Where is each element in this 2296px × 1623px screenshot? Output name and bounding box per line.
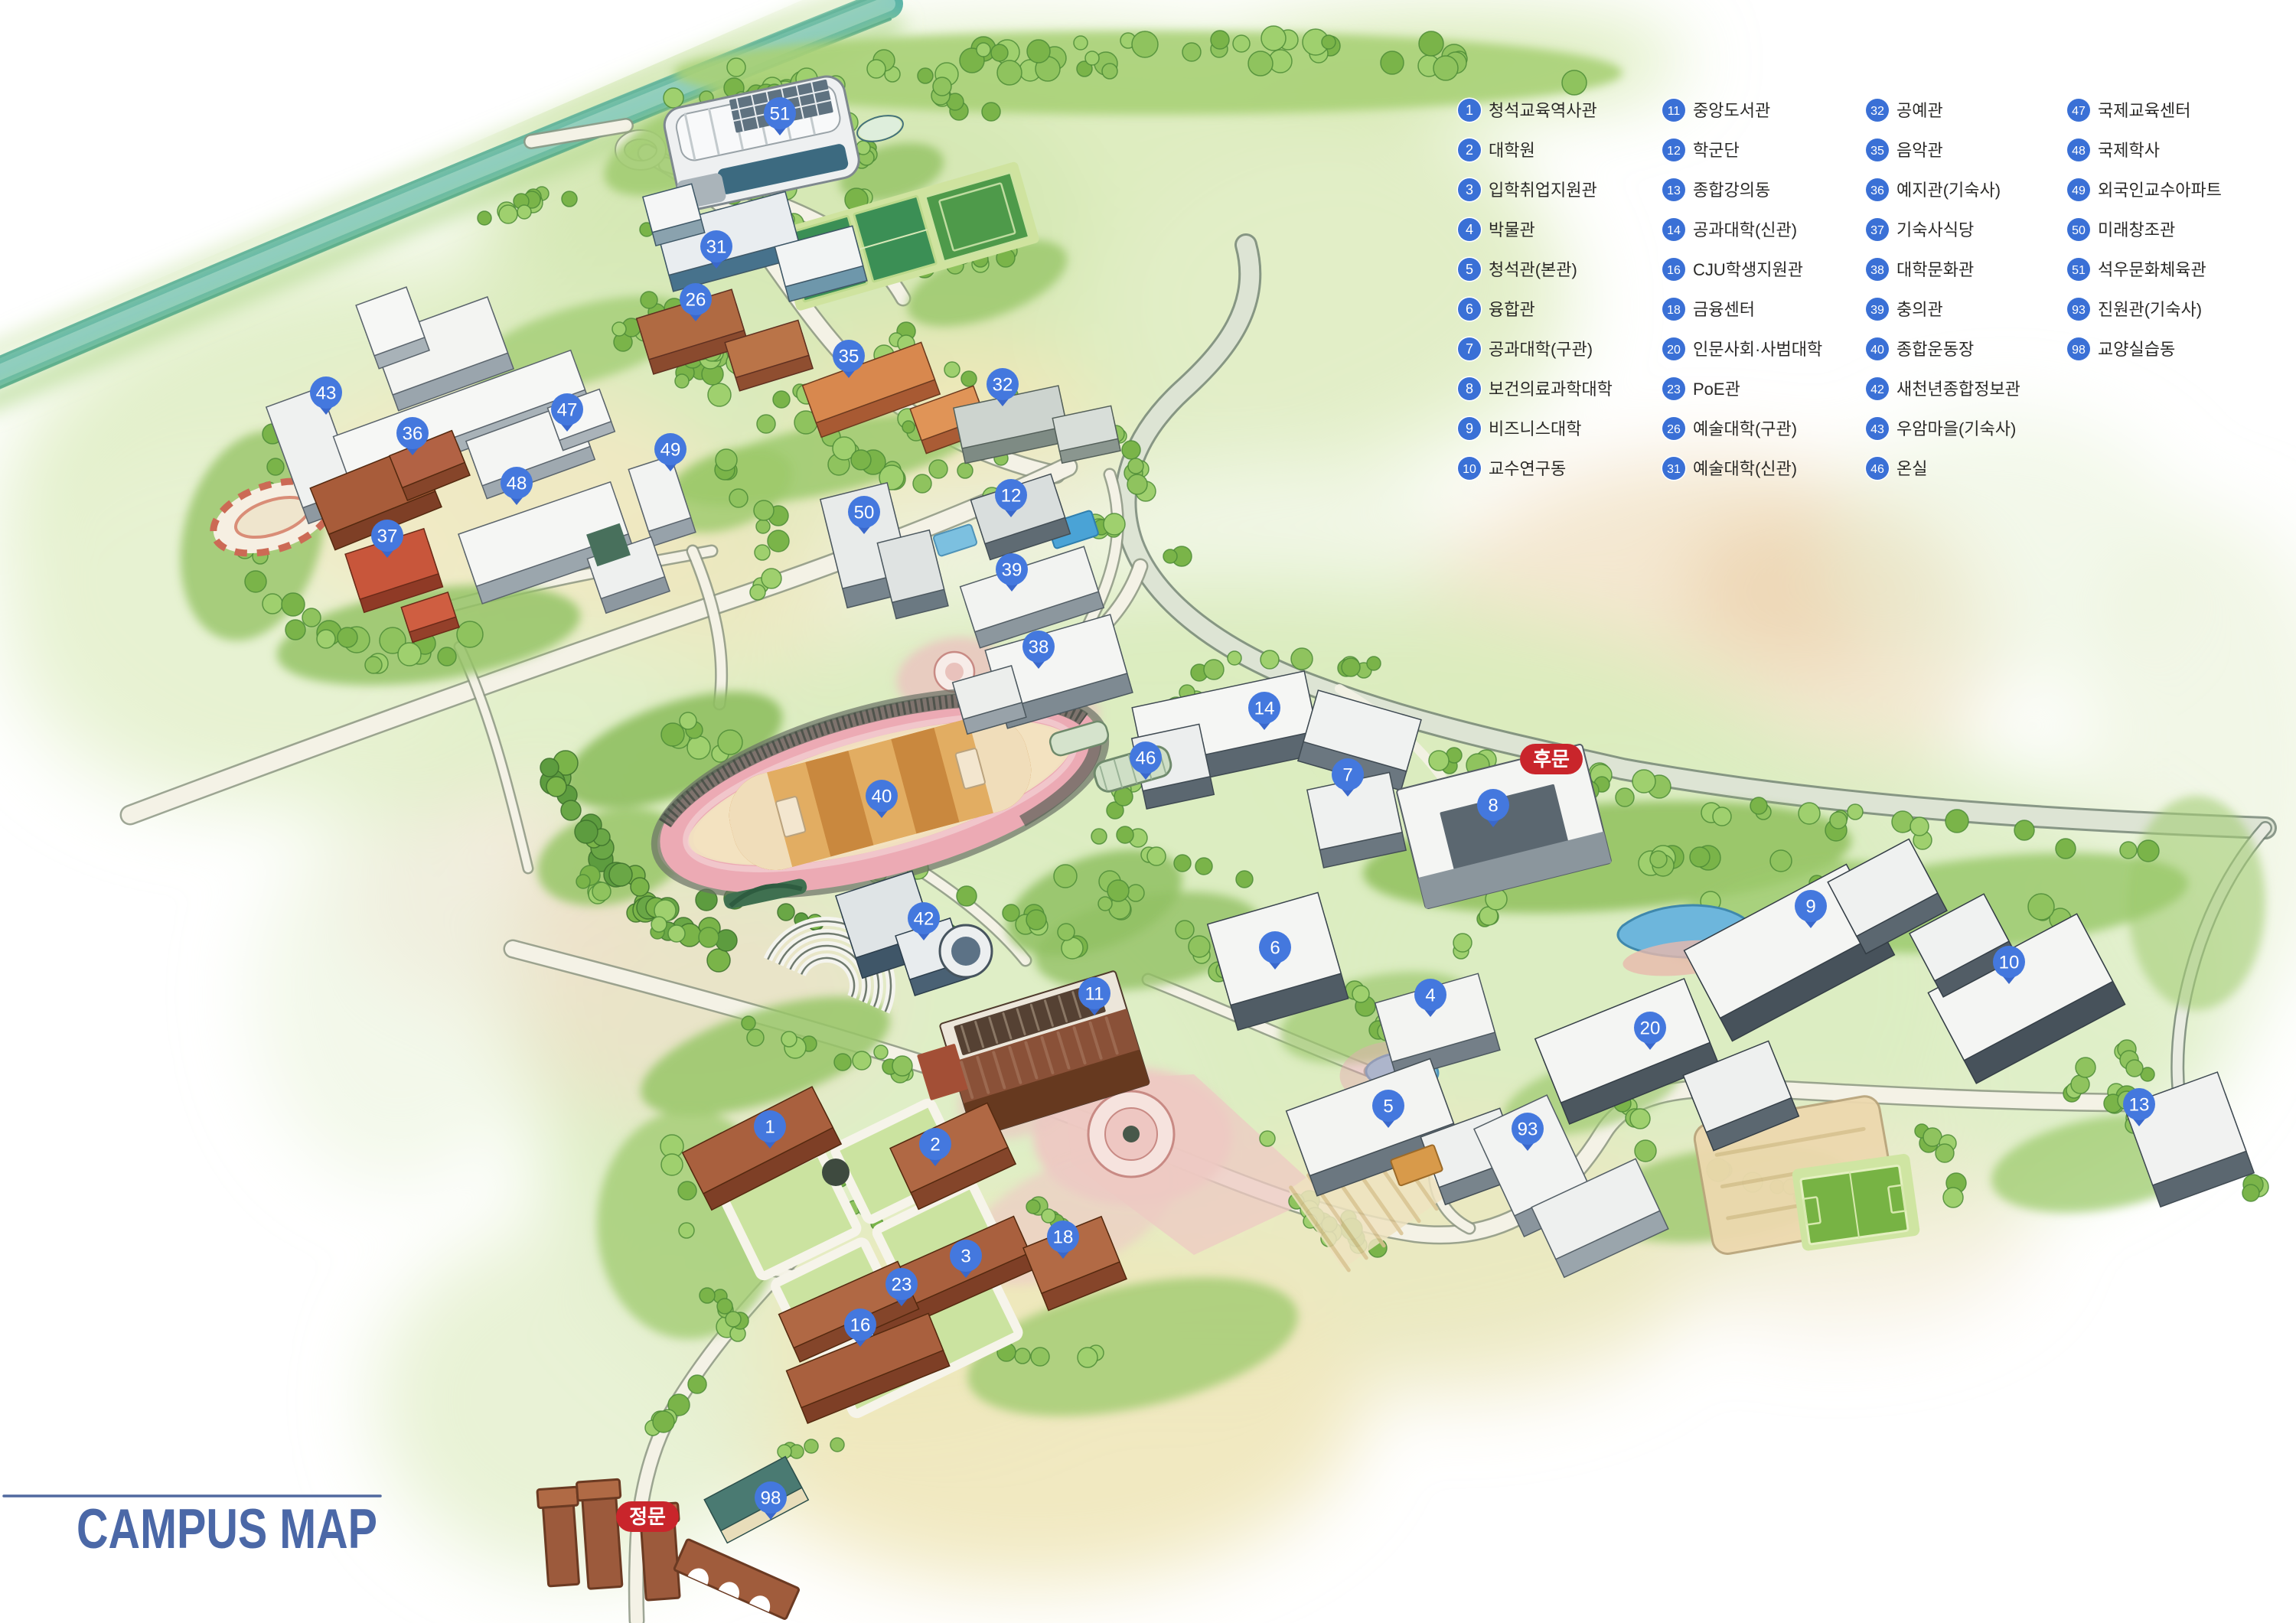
svg-text:교수연구동: 교수연구동 [1489, 459, 1566, 478]
svg-text:4: 4 [1466, 222, 1473, 237]
svg-text:종합강의동: 종합강의동 [1693, 181, 1770, 200]
svg-text:32: 32 [993, 375, 1013, 396]
svg-text:13: 13 [1667, 184, 1681, 197]
svg-text:온실: 온실 [1896, 459, 1927, 478]
svg-text:학군단: 학군단 [1693, 141, 1740, 160]
svg-text:10: 10 [1999, 953, 2020, 973]
svg-text:23: 23 [1667, 383, 1681, 396]
svg-text:40: 40 [1870, 344, 1884, 357]
svg-text:종합운동장: 종합운동장 [1896, 340, 1974, 359]
svg-text:14: 14 [1667, 224, 1681, 237]
svg-text:35: 35 [839, 347, 859, 367]
svg-text:93: 93 [2072, 304, 2086, 317]
svg-text:예술대학(신관): 예술대학(신관) [1693, 459, 1797, 478]
svg-text:38: 38 [1029, 637, 1049, 658]
svg-text:32: 32 [1870, 105, 1884, 118]
svg-text:26: 26 [1667, 423, 1681, 436]
svg-text:외국인교수아파트: 외국인교수아파트 [2098, 181, 2222, 200]
svg-text:12: 12 [1667, 145, 1681, 158]
svg-text:후문: 후문 [1533, 748, 1570, 771]
svg-text:우암마을(기숙사): 우암마을(기숙사) [1896, 419, 2016, 438]
svg-text:47: 47 [557, 400, 578, 421]
svg-text:인문사회·사범대학: 인문사회·사범대학 [1693, 340, 1822, 359]
svg-text:98: 98 [761, 1488, 781, 1509]
svg-text:49: 49 [660, 440, 681, 461]
svg-text:석우문화체육관: 석우문화체육관 [2098, 260, 2206, 279]
svg-text:대학문화관: 대학문화관 [1896, 260, 1974, 279]
svg-text:37: 37 [1870, 224, 1884, 237]
svg-text:청석관(본관): 청석관(본관) [1489, 260, 1577, 279]
svg-text:98: 98 [2072, 344, 2086, 357]
svg-text:10: 10 [1463, 463, 1476, 476]
svg-text:음악관: 음악관 [1896, 141, 1943, 160]
svg-text:5: 5 [1466, 262, 1473, 277]
svg-text:2: 2 [1466, 142, 1473, 158]
svg-text:43: 43 [1870, 423, 1884, 436]
svg-text:16: 16 [850, 1315, 871, 1336]
svg-text:36: 36 [403, 424, 423, 445]
svg-text:중앙도서관: 중앙도서관 [1693, 101, 1770, 120]
svg-text:1: 1 [1466, 103, 1473, 118]
svg-text:예지관(기숙사): 예지관(기숙사) [1896, 181, 2001, 200]
svg-text:진원관(기숙사): 진원관(기숙사) [2098, 300, 2202, 319]
svg-text:공과대학(신관): 공과대학(신관) [1693, 220, 1797, 240]
svg-text:8: 8 [1466, 381, 1473, 396]
svg-text:11: 11 [1085, 984, 1104, 1005]
svg-text:청석교육역사관: 청석교육역사관 [1489, 101, 1597, 120]
svg-text:38: 38 [1870, 264, 1884, 277]
svg-text:교양실습동: 교양실습동 [2098, 340, 2175, 359]
svg-text:11: 11 [1668, 105, 1681, 118]
svg-text:PoE관: PoE관 [1693, 380, 1740, 399]
svg-text:예술대학(구관): 예술대학(구관) [1693, 419, 1797, 438]
svg-text:40: 40 [872, 787, 892, 807]
svg-text:국제교육센터: 국제교육센터 [2098, 101, 2190, 120]
svg-text:국제학사: 국제학사 [2098, 141, 2160, 160]
svg-text:정문: 정문 [629, 1505, 666, 1528]
svg-text:18: 18 [1667, 304, 1681, 317]
svg-text:3: 3 [1466, 182, 1473, 197]
svg-text:23: 23 [892, 1275, 912, 1295]
svg-text:미래창조관: 미래창조관 [2098, 220, 2175, 240]
svg-text:31: 31 [1667, 463, 1681, 476]
svg-text:공예관: 공예관 [1896, 101, 1943, 120]
svg-text:31: 31 [706, 237, 727, 258]
svg-text:93: 93 [1518, 1119, 1538, 1140]
svg-text:20: 20 [1667, 344, 1681, 357]
svg-text:51: 51 [770, 104, 791, 125]
svg-text:36: 36 [1870, 184, 1884, 197]
svg-text:50: 50 [2072, 224, 2086, 237]
svg-text:CAMPUS MAP: CAMPUS MAP [77, 1498, 377, 1560]
svg-text:46: 46 [1870, 463, 1884, 476]
svg-text:대학원: 대학원 [1489, 141, 1535, 160]
svg-text:9: 9 [1466, 421, 1473, 436]
svg-text:42: 42 [1870, 383, 1884, 396]
svg-text:16: 16 [1667, 264, 1681, 277]
svg-text:50: 50 [854, 503, 875, 523]
svg-text:46: 46 [1136, 748, 1156, 769]
svg-text:1: 1 [765, 1117, 775, 1138]
svg-text:기숙사식당: 기숙사식당 [1896, 220, 1974, 240]
svg-text:7: 7 [1342, 765, 1352, 786]
svg-text:35: 35 [1870, 145, 1884, 158]
svg-text:26: 26 [686, 290, 706, 311]
svg-text:3: 3 [960, 1247, 970, 1267]
svg-text:48: 48 [2072, 145, 2086, 158]
svg-text:4: 4 [1425, 986, 1435, 1006]
svg-text:49: 49 [2072, 184, 2086, 197]
svg-text:13: 13 [2129, 1095, 2150, 1116]
svg-text:43: 43 [316, 383, 337, 404]
svg-text:39: 39 [1002, 560, 1022, 581]
svg-text:18: 18 [1053, 1227, 1074, 1248]
svg-text:20: 20 [1640, 1018, 1661, 1039]
svg-text:39: 39 [1870, 304, 1884, 317]
svg-text:융합관: 융합관 [1489, 300, 1535, 319]
svg-text:7: 7 [1466, 341, 1473, 357]
svg-text:금융센터: 금융센터 [1693, 300, 1755, 319]
svg-text:입학취업지원관: 입학취업지원관 [1489, 181, 1597, 200]
svg-text:8: 8 [1488, 796, 1498, 816]
svg-text:51: 51 [2072, 264, 2086, 277]
svg-text:6: 6 [1466, 301, 1473, 317]
svg-text:9: 9 [1805, 897, 1815, 917]
svg-text:5: 5 [1383, 1097, 1393, 1117]
svg-text:박물관: 박물관 [1489, 220, 1535, 240]
svg-text:14: 14 [1254, 699, 1275, 719]
svg-text:새천년종합정보관: 새천년종합정보관 [1896, 380, 2020, 399]
svg-text:CJU학생지원관: CJU학생지원관 [1693, 260, 1803, 279]
svg-text:2: 2 [930, 1135, 940, 1155]
svg-text:48: 48 [507, 474, 527, 494]
svg-text:42: 42 [914, 909, 934, 930]
svg-text:보건의료과학대학: 보건의료과학대학 [1489, 380, 1613, 399]
svg-text:47: 47 [2072, 105, 2086, 118]
svg-text:공과대학(구관): 공과대학(구관) [1489, 340, 1593, 359]
svg-text:비즈니스대학: 비즈니스대학 [1489, 419, 1581, 438]
svg-text:37: 37 [377, 526, 398, 547]
svg-text:충의관: 충의관 [1896, 300, 1943, 319]
svg-text:6: 6 [1270, 938, 1280, 959]
svg-text:12: 12 [1001, 486, 1022, 507]
